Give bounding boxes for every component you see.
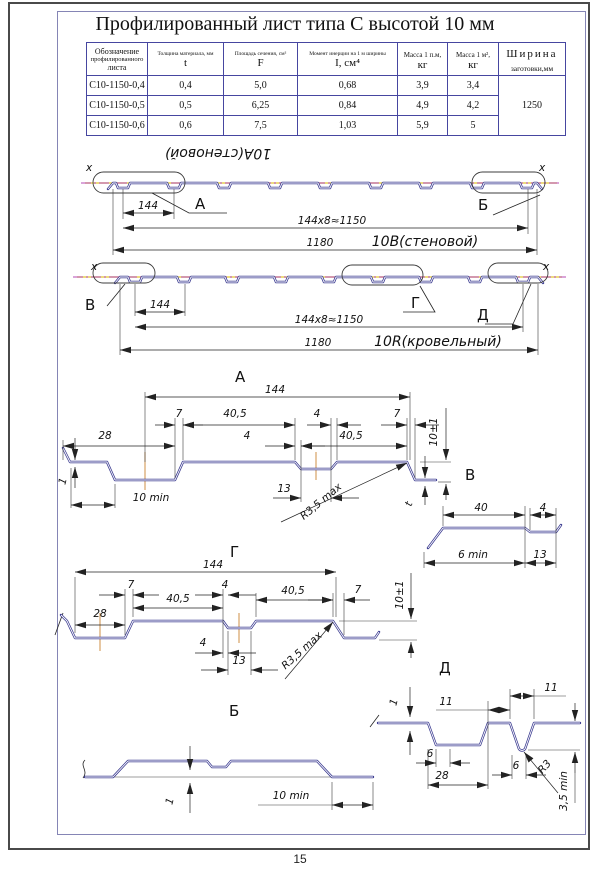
callout-letter-b: Б: [478, 196, 488, 214]
axis-label: x: [90, 261, 98, 273]
header-line: заготовки,мм: [499, 60, 565, 73]
dim-label: 4: [222, 579, 229, 591]
profile-section: [63, 448, 436, 480]
profile-section: [378, 723, 580, 751]
dim-label: 144: [138, 200, 158, 212]
header-name: Толщина материала, мм: [148, 49, 223, 57]
table-cell: 6,25: [224, 96, 298, 116]
table-cell: 0,6: [148, 116, 224, 136]
table-cell: 0,84: [298, 96, 398, 116]
table-row: С10-1150-0,6 0,6 7,5 1,03 5,9 5: [87, 116, 566, 136]
header-symbol: кг: [448, 59, 498, 71]
dim-label: 144: [150, 299, 170, 311]
page-number: 15: [270, 852, 330, 866]
header-name: Момент инерции на 1 м ширины: [298, 49, 397, 57]
dim-label: 4: [314, 408, 321, 420]
break-mark: [83, 760, 85, 778]
callout-leader-a: [152, 193, 227, 213]
header-mass-pm: Масса 1 п.м, кг: [398, 43, 448, 76]
dim-label: 13: [232, 655, 245, 667]
detail-d-drawing: Д 1 11 11 6 28 6 R3 3,5 min: [366, 653, 591, 828]
header-thickness: Толщина материала, мм t: [148, 43, 224, 76]
dim-label: 40: [474, 502, 488, 514]
strip2-drawing: x x В Г Д 144 144х8≈1150 1180 10R(кровел…: [57, 258, 585, 366]
table-row: С10-1150-0,4 0,4 5,0 0,68 3,9 3,4 1250: [87, 76, 566, 96]
height-label: 10±1: [428, 418, 440, 447]
dim-label: 6: [513, 760, 520, 772]
sheet-name-wall: 10В(стеновой): [372, 234, 478, 250]
dim-label: 28: [93, 608, 107, 620]
header-line: листа: [87, 63, 147, 72]
dim-label: 1: [56, 476, 69, 486]
header-area: Площадь сечения, см² F: [224, 43, 298, 76]
callout-letter-g: Г: [411, 294, 420, 312]
header-inertia: Момент инерции на 1 м ширины I, см⁴: [298, 43, 398, 76]
profile-core: [63, 448, 436, 480]
strip1-drawing: x x 10А(стеновой) А Б 144 144х8≈1150 118…: [57, 143, 585, 261]
table-cell: 3,4: [448, 76, 499, 96]
header-line: Обозначение: [87, 47, 147, 56]
table-cell: 7,5: [224, 116, 298, 136]
table-row: С10-1150-0,5 0,5 6,25 0,84 4,9 4,2: [87, 96, 566, 116]
dim-label: 13: [533, 549, 546, 561]
profile-core: [61, 615, 379, 638]
dim-label: 3,5 min: [558, 771, 570, 811]
callout-leader-b: [493, 195, 540, 215]
dim-label: 10 min: [273, 790, 310, 802]
dim-label: 40,5: [223, 408, 247, 420]
header-symbol: t: [148, 57, 223, 69]
dim-label: 11: [544, 682, 557, 694]
callout-letter-a: А: [195, 195, 206, 213]
detail-b-drawing: Б 1 10 min: [63, 698, 408, 818]
flipped-sheet-name: 10А(стеновой): [165, 145, 271, 161]
table-cell: 5,0: [224, 76, 298, 96]
callout-leader-v: [107, 284, 125, 306]
dim-label: 4: [540, 502, 547, 514]
table-cell: 0,4: [148, 76, 224, 96]
header-line: Ширина: [499, 45, 565, 60]
table-cell: 1,03: [298, 116, 398, 136]
dim-label: 7: [176, 408, 183, 420]
header-mass-m2: Масса 1 м², кг: [448, 43, 499, 76]
detail-label: Б: [229, 702, 239, 720]
profile-core: [378, 723, 580, 751]
header-symbol: F: [224, 57, 297, 69]
page-title: Профилированный лист типа С высотой 10 м…: [95, 13, 495, 36]
header-designation: Обозначение профилированного листа: [87, 43, 148, 76]
dim-label: 4: [200, 637, 207, 649]
spec-table: Обозначение профилированного листа Толщи…: [86, 42, 566, 136]
header-symbol: I, см⁴: [298, 57, 397, 69]
detail-label: В: [465, 466, 475, 484]
detail-label: Д: [439, 659, 451, 677]
table-cell: 0,5: [148, 96, 224, 116]
radius-label: R3: [536, 758, 554, 776]
table-cell: 4,2: [448, 96, 499, 116]
detail-balloon-v: [93, 263, 155, 283]
dim-label: 28: [98, 430, 112, 442]
dim-label: 144х8≈1150: [298, 215, 367, 227]
header-line: профилированного: [87, 56, 147, 63]
table-cell: С10-1150-0,5: [87, 96, 148, 116]
table-cell: 5: [448, 116, 499, 136]
detail-label: Г: [230, 543, 239, 561]
drawing-page: Профилированный лист типа С высотой 10 м…: [0, 0, 600, 885]
dim-label: 1: [163, 796, 176, 806]
dim-label: 144: [265, 384, 285, 396]
dim-label: 1180: [305, 337, 332, 349]
dim-label: 144: [203, 559, 223, 571]
dim-label: 11: [439, 696, 452, 708]
dim-label: 40,5: [339, 430, 363, 442]
dim-label: 1180: [307, 237, 334, 249]
break-mark: [370, 715, 379, 727]
dim-label: 10 min: [133, 492, 170, 504]
table-cell: 4,9: [398, 96, 448, 116]
sheet-profile-core: [108, 183, 542, 189]
dim-label: 7: [355, 584, 362, 596]
dim-label: 1: [387, 697, 400, 707]
dim-label: 28: [435, 770, 449, 782]
dim-label: 40,5: [281, 585, 305, 597]
header-symbol: кг: [398, 59, 447, 71]
sheet-name-roof: 10R(кровельный): [374, 334, 502, 350]
header-name: Масса 1 м²,: [448, 48, 498, 59]
detail-label: А: [235, 368, 246, 386]
axis-label: x: [542, 261, 550, 273]
header-width: Ширина заготовки,мм: [499, 43, 566, 76]
height-label: 10±1: [394, 581, 406, 610]
dim-label: 4: [244, 430, 251, 442]
radius-label: R3,5 max: [279, 629, 325, 672]
dim-label: 13: [277, 483, 290, 495]
dim-label: 7: [128, 579, 135, 591]
callout-letter-d: Д: [477, 306, 489, 324]
header-name: Площадь сечения, см²: [224, 49, 297, 57]
table-cell: 0,68: [298, 76, 398, 96]
header-name: Масса 1 п.м,: [398, 48, 447, 59]
axis-label: x: [538, 162, 546, 174]
dim-label: 144х8≈1150: [295, 314, 364, 326]
detail-a-drawing: А 144 7 40,5 4 7 28 4: [55, 368, 460, 543]
axis-label: x: [85, 162, 93, 174]
table-cell: С10-1150-0,4: [87, 76, 148, 96]
table-cell: 5,9: [398, 116, 448, 136]
dim-label: 6: [427, 748, 434, 760]
dim-label: 40,5: [166, 593, 190, 605]
table-cell: С10-1150-0,6: [87, 116, 148, 136]
table-cell: 3,9: [398, 76, 448, 96]
radius-label: R3,5 max: [298, 480, 345, 522]
callout-leader-d: [485, 284, 531, 324]
profile-section: [61, 615, 379, 638]
dim-label: 7: [394, 408, 401, 420]
callout-letter-v: В: [85, 296, 95, 314]
table-cell-width-value: 1250: [499, 76, 566, 136]
profile-core: [85, 761, 373, 777]
